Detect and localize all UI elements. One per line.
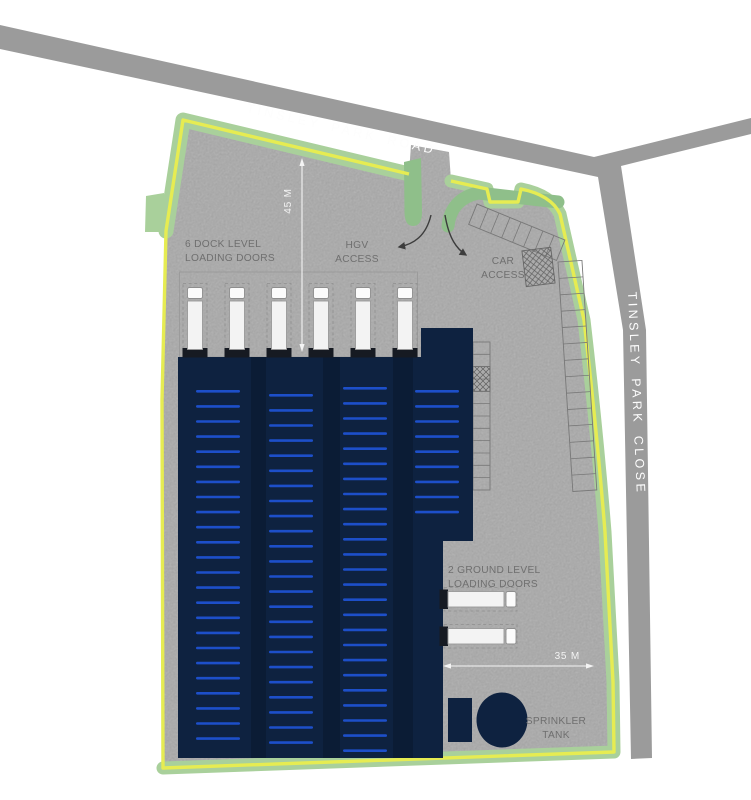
rack-stripe [269, 560, 313, 563]
hatched-bay [473, 367, 490, 392]
ground-doors-label-line1: 2 GROUND LEVEL [448, 565, 541, 576]
rack-stripe [343, 583, 387, 586]
rack-stripe [196, 707, 240, 710]
rack-stripe [415, 511, 459, 514]
rack-stripe [196, 632, 240, 635]
rack-stripe [343, 432, 387, 435]
rack-stripe [343, 463, 387, 466]
rack-stripe [343, 719, 387, 722]
rack-stripe [415, 481, 459, 484]
rack-stripe [196, 496, 240, 499]
rack-stripe [415, 405, 459, 408]
rack-stripe [343, 402, 387, 405]
rack-stripe [269, 666, 313, 669]
rack-stripe [196, 737, 240, 740]
rack-stripe [196, 662, 240, 665]
rack-stripe [269, 454, 313, 457]
rack-stripe [269, 470, 313, 473]
site-plan-canvas: 45 M 35 M 6 DOCK LEVEL LOADING DOORS HGV… [0, 0, 751, 800]
rack-stripe [196, 692, 240, 695]
rack-stripe [269, 530, 313, 533]
truck-cab [356, 288, 371, 299]
truck-trailer [188, 301, 203, 350]
rack-stripe [269, 545, 313, 548]
rack-stripe [196, 405, 240, 408]
rack-stripe [196, 617, 240, 620]
hgv-access-label-line1: HGV [346, 240, 369, 251]
rack-stripe [269, 394, 313, 397]
rack-stripe [196, 601, 240, 604]
rack-stripe [269, 651, 313, 654]
car-access-label-line2: ACCESS [481, 270, 525, 281]
truck-trailer [230, 301, 245, 350]
rack-stripe [196, 677, 240, 680]
rack-stripe [196, 571, 240, 574]
rack-stripe [343, 704, 387, 707]
rack-stripe [415, 390, 459, 393]
rack-stripe [269, 636, 313, 639]
rack-stripe [343, 387, 387, 390]
rack-stripe [196, 511, 240, 514]
rack-stripe [269, 726, 313, 729]
rack-stripe [196, 526, 240, 529]
truck-cab [188, 288, 203, 299]
truck-trailer [398, 301, 413, 350]
rack-stripe [269, 485, 313, 488]
car-access-label-line1: CAR [492, 256, 514, 267]
truck-cab [230, 288, 245, 299]
sprinkler-tank-label-line1: SPRINKLER [526, 716, 586, 727]
sprinkler-plant-block [448, 698, 472, 742]
car-access-hatched-area [522, 247, 555, 286]
rack-stripe [269, 681, 313, 684]
rack-stripe [269, 605, 313, 608]
rack-stripe [343, 689, 387, 692]
rack-stripe [343, 538, 387, 541]
sprinkler-tank-circle [477, 693, 528, 748]
rack-stripe [343, 447, 387, 450]
rack-stripe [196, 556, 240, 559]
rack-stripe [343, 629, 387, 632]
dock-doors-label-line2: LOADING DOORS [185, 253, 275, 264]
rack-stripe [196, 541, 240, 544]
rack-stripe [269, 500, 313, 503]
rack-stripe [196, 450, 240, 453]
rack-stripe [196, 420, 240, 423]
rack-stripe [269, 424, 313, 427]
rack-stripe [415, 496, 459, 499]
rack-stripe [196, 722, 240, 725]
rack-stripe [343, 493, 387, 496]
ground-level-door [440, 627, 449, 647]
rack-stripe [343, 568, 387, 571]
rack-stripe [343, 614, 387, 617]
rack-stripe [269, 515, 313, 518]
dimension-35m-label: 35 M [555, 651, 580, 662]
truck-cab [272, 288, 287, 299]
sprinkler-tank-label-line2: TANK [542, 730, 570, 741]
rack-stripe [269, 439, 313, 442]
truck-cab [314, 288, 329, 299]
truck-cab [506, 629, 516, 645]
rack-stripe [343, 553, 387, 556]
rack-stripe [196, 466, 240, 469]
truck-cab [506, 592, 516, 608]
truck-cab [398, 288, 413, 299]
rack-stripe [343, 659, 387, 662]
rack-stripe [269, 590, 313, 593]
rack-stripe [415, 420, 459, 423]
rack-stripe [343, 598, 387, 601]
rack-stripe [269, 621, 313, 624]
rack-stripe [415, 450, 459, 453]
rack-stripe [343, 417, 387, 420]
dock-doors-label-line1: 6 DOCK LEVEL [185, 239, 261, 250]
truck-trailer [356, 301, 371, 350]
rack-stripe [269, 575, 313, 578]
rack-stripe [415, 466, 459, 469]
hgv-access-label-line2: ACCESS [335, 254, 379, 265]
rack-stripe [196, 481, 240, 484]
rack-stripe [269, 409, 313, 412]
dimension-45m-label: 45 M [283, 188, 294, 213]
truck-trailer [272, 301, 287, 350]
rack-stripe [269, 711, 313, 714]
truck-trailer [448, 629, 504, 645]
ground-doors-label-line2: LOADING DOORS [448, 579, 538, 590]
rack-stripe [269, 741, 313, 744]
rack-stripe [415, 435, 459, 438]
ground-level-door [440, 590, 449, 610]
rack-stripe [343, 644, 387, 647]
rack-stripe [343, 734, 387, 737]
rack-stripe [343, 508, 387, 511]
rack-stripe [343, 674, 387, 677]
rack-stripe [343, 478, 387, 481]
rack-stripe [196, 586, 240, 589]
rack-stripe [343, 523, 387, 526]
rack-stripe [269, 696, 313, 699]
rack-stripe [343, 749, 387, 752]
rack-stripe [196, 390, 240, 393]
entrance-green-island-west [404, 158, 422, 226]
rack-stripe [196, 647, 240, 650]
site-plan-drawing: 45 M 35 M 6 DOCK LEVEL LOADING DOORS HGV… [0, 0, 751, 800]
truck-trailer [448, 592, 504, 608]
rack-stripe [196, 435, 240, 438]
truck-trailer [314, 301, 329, 350]
